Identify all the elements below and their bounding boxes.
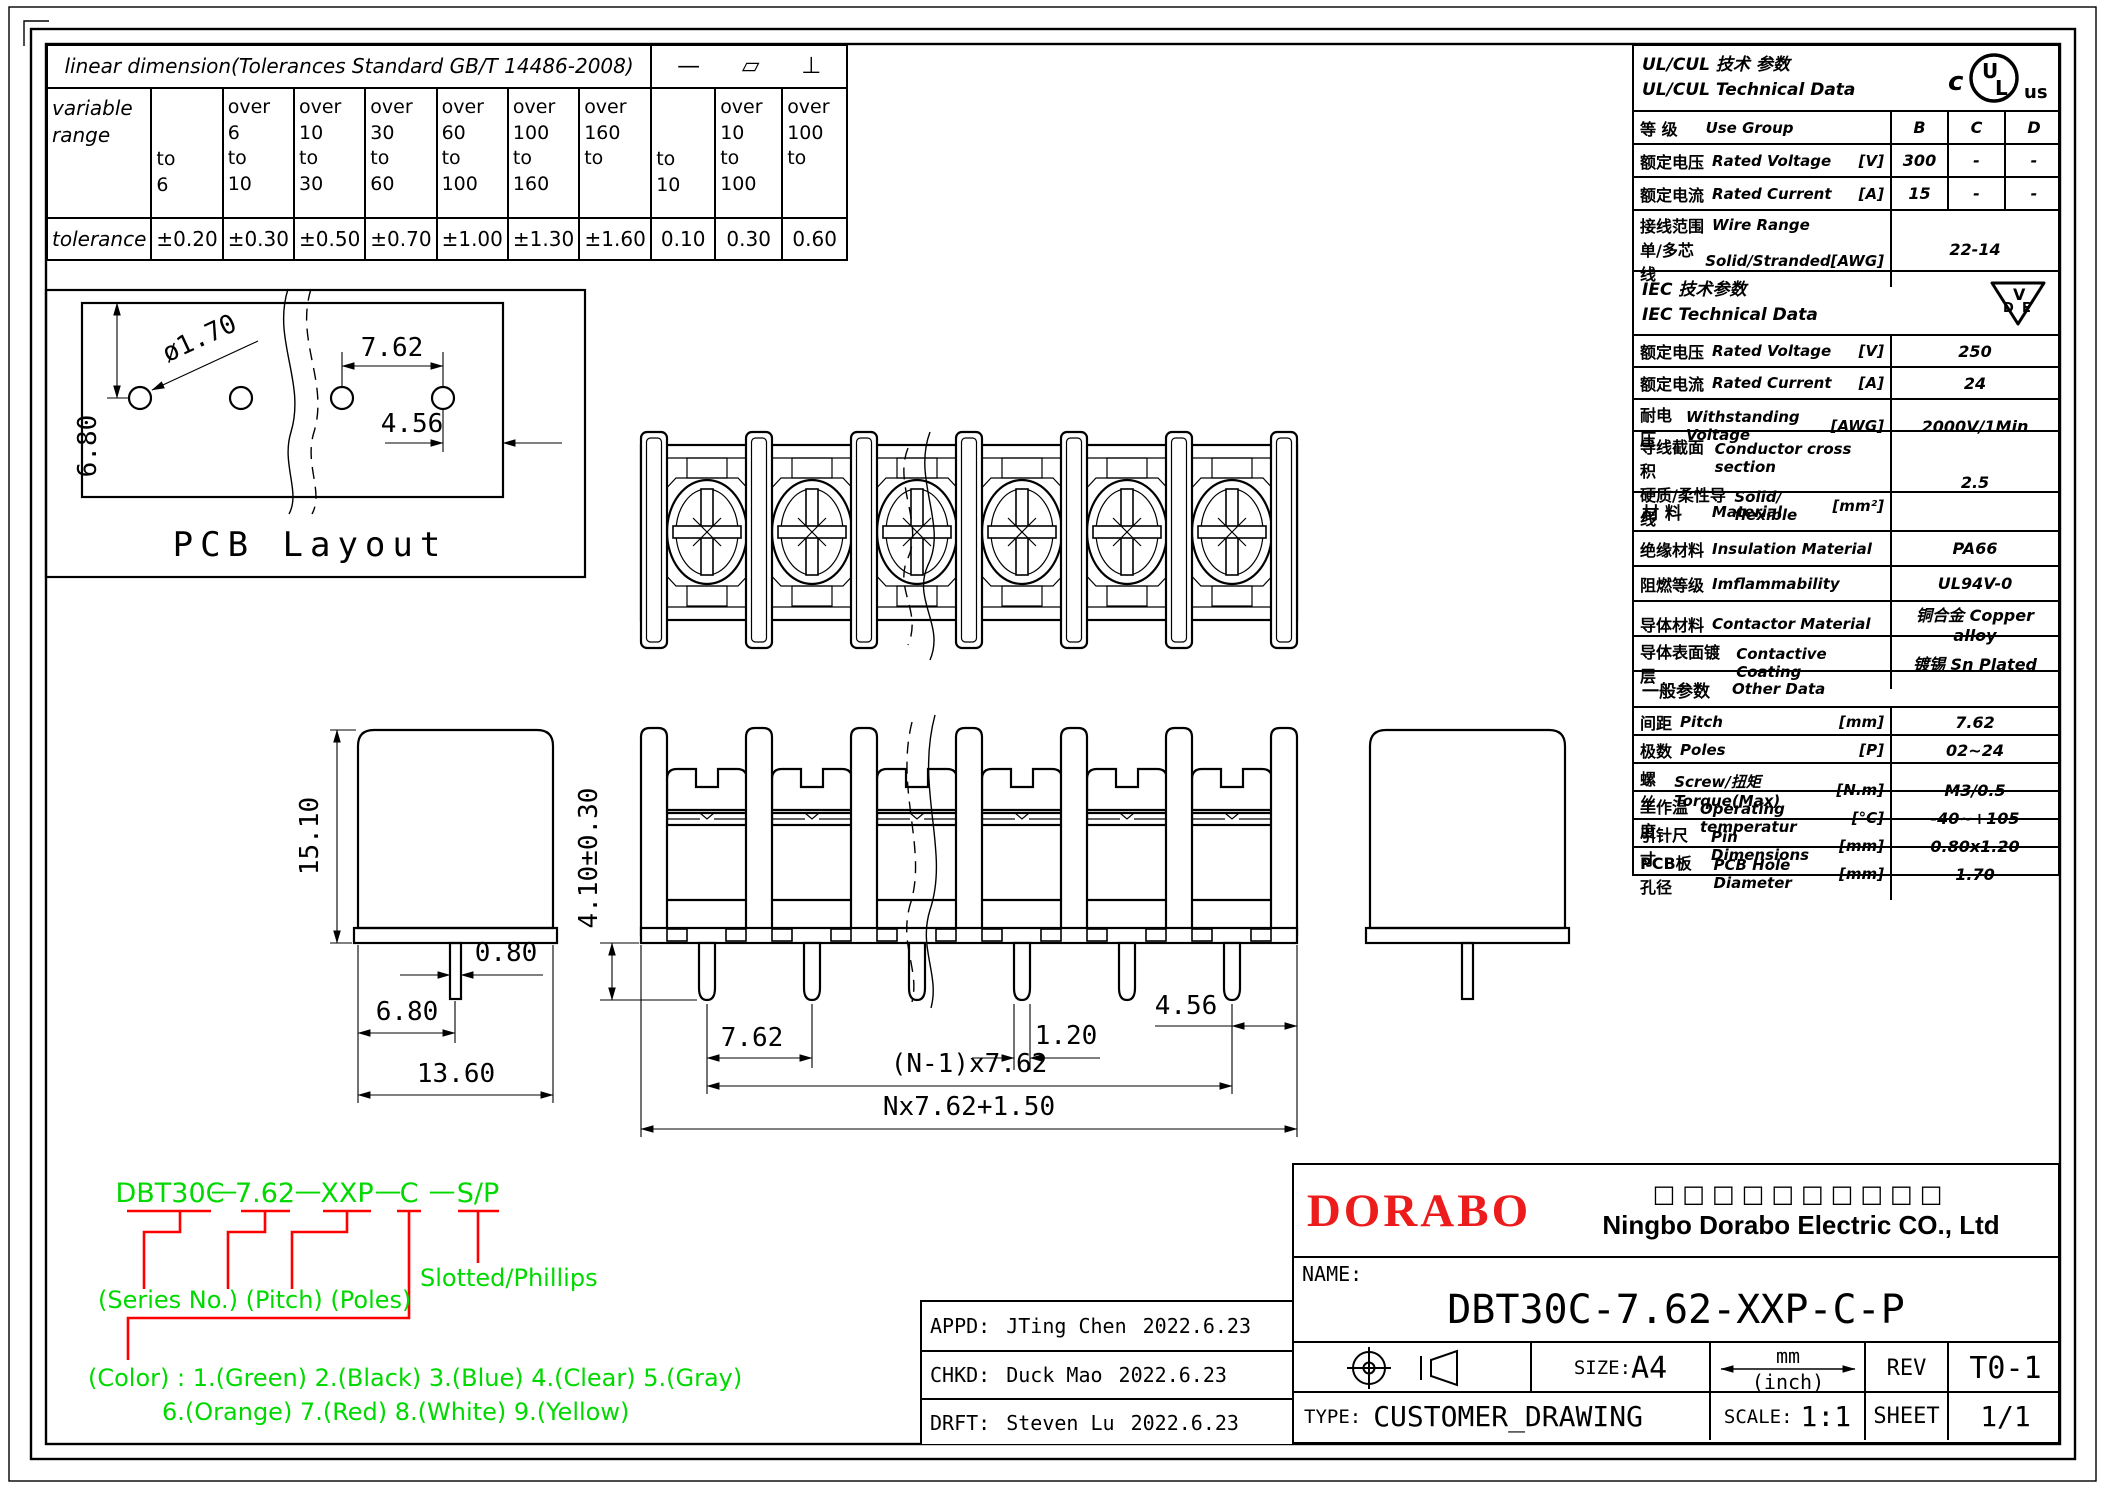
withstanding-voltage-row: 耐电压 Withstanding Voltage [AWG] 2000V/1Mi… <box>1634 398 2058 430</box>
units-cell: mm (inch) <box>1709 1343 1864 1393</box>
label-zh: PCB板孔径 <box>1640 850 1706 898</box>
unit: [mm²] <box>1832 497 1884 515</box>
tolerance-value: ±0.50 <box>294 218 365 260</box>
tolerance-table: linear dimension(Tolerances Standard GB/… <box>46 44 848 261</box>
approval-date: 2022.6.23 <box>1143 1314 1251 1338</box>
name-row: NAME: DBT30C-7.62-XXP-C-P <box>1294 1258 2058 1343</box>
front-pin-thickness-dim: 1.20 <box>1035 1021 1098 1051</box>
value: 02~24 <box>1890 736 2058 764</box>
approval-name: Duck Mao <box>1006 1363 1102 1387</box>
approvals-block: APPD: JTing Chen 2022.6.23 CHKD: Duck Ma… <box>920 1300 1292 1444</box>
range-col: over160to <box>579 88 651 218</box>
label-en: Rated Voltage <box>1712 152 1831 170</box>
engineering-drawing-sheet: ø1.70 6.80 7.62 4.56 PCB Layout <box>0 0 2104 1488</box>
svg-text:L: L <box>1995 76 2008 100</box>
screw-torque-row: 螺丝 Screw/扭矩 Torque(Max) [N.m] M3/0.5 <box>1634 762 2058 790</box>
first-angle-projection-icon <box>1317 1345 1507 1391</box>
break-line <box>924 432 935 660</box>
label-en: Rated Current <box>1712 374 1831 392</box>
unit: [V] <box>1859 152 1884 170</box>
insulation-material-row: 绝缘材料 Insulation Material PA66 <box>1634 530 2058 565</box>
company-name-cn: □□□□□□□□□□ <box>1653 1180 1950 1208</box>
ul-section-header: UL/CUL 技术 参数 UL/CUL Technical Data c U L… <box>1634 46 2058 110</box>
size-label: SIZE: <box>1574 1357 1631 1379</box>
iec-rated-voltage-row: 额定电压 Rated Voltage [V] 250 <box>1634 334 2058 366</box>
part-number-legend: DBT30C — 7.62 — XXP — C — S/P (Series No… <box>88 1176 742 1426</box>
sheet-value: 1/1 <box>1947 1393 2062 1440</box>
code-dash: — <box>211 1176 238 1207</box>
label-zh: 接线范围 <box>1640 213 1704 237</box>
side-pin-width-dim: 0.80 <box>475 938 538 968</box>
code-poles: XXP <box>320 1178 373 1209</box>
label-en: Rated Current <box>1712 185 1831 203</box>
side-pin-offset-dim: 6.80 <box>376 997 439 1027</box>
tolerance-title: linear dimension(Tolerances Standard GB/… <box>47 45 651 88</box>
section-title-en: Material <box>1712 503 1782 521</box>
side-height-dim: 15.10 <box>295 797 325 875</box>
tolerance-value: ±1.30 <box>508 218 579 260</box>
unit: [mm] <box>1839 713 1884 731</box>
legend-colors-line2: 6.(Orange) 7.(Red) 8.(White) 9.(Yellow) <box>162 1398 629 1426</box>
approval-date: 2022.6.23 <box>1119 1363 1227 1387</box>
use-group-row: 等 级 Use Group B C D <box>1634 110 2058 143</box>
terminal-block-side-view-right <box>1366 730 1569 999</box>
terminal-block-front-view: 4.10±0.30 7.62 1.20 4.56 (N-1)x7.62 Nx7.… <box>574 715 1297 1137</box>
label-en: Wire Range <box>1712 216 1810 234</box>
svg-text:D: D <box>2003 301 2014 316</box>
use-group-d: D <box>2004 112 2062 143</box>
type-row: TYPE: CUSTOMER_DRAWING SCALE:1:1 SHEET 1… <box>1294 1393 2058 1440</box>
value: UL94V-0 <box>1890 567 2058 600</box>
approval-role: CHKD: <box>930 1363 990 1387</box>
legend-series-pitch-poles: (Series No.) (Pitch) (Poles) <box>98 1286 411 1314</box>
label-en: Imflammability <box>1712 575 1840 593</box>
pitch-row: 间距 Pitch [mm] 7.62 <box>1634 706 2058 734</box>
wire-range-row: 接线范围 Wire Range 单/多芯线 Solid/Stranded [AW… <box>1634 209 2058 270</box>
section-title-zh: 材 料 <box>1642 499 1682 524</box>
rev-value: T0-1 <box>1947 1343 2062 1393</box>
approval-role: DRFT: <box>930 1411 990 1435</box>
cul-us-certification-icon: c U L us <box>1946 52 2050 104</box>
value: 镀锡 Sn Plated <box>1890 637 2058 689</box>
ul-rated-voltage-row: 额定电压 Rated Voltage [V] 300 - - <box>1634 143 2058 176</box>
break-line-dashed <box>307 289 318 514</box>
unit-mm: mm <box>1775 1344 1799 1368</box>
range-col: over100to160 <box>508 88 579 218</box>
range-col: over6to10 <box>223 88 294 218</box>
svg-text:E: E <box>2022 301 2031 316</box>
range-col: over10to30 <box>294 88 365 218</box>
unit: [AWG] <box>1831 252 1884 270</box>
unit: [V] <box>1859 342 1884 360</box>
type-label: TYPE: <box>1304 1406 1361 1428</box>
vde-certification-icon: V D E <box>1986 276 2050 330</box>
pcb-layout-caption: PCB Layout <box>173 525 448 565</box>
imflammability-row: 阻燃等级 Imflammability UL94V-0 <box>1634 565 2058 600</box>
value: 7.62 <box>1890 708 2058 736</box>
front-pin-span-dim: (N-1)x7.62 <box>891 1049 1048 1079</box>
value: 250 <box>1890 336 2058 366</box>
name-label: NAME: <box>1302 1262 1362 1286</box>
geometry-symbols: — ▱ ⊥ <box>651 45 847 88</box>
range-col: to6 <box>151 88 222 218</box>
label-en: Contactive Coating <box>1736 645 1884 681</box>
company-name-en: Ningbo Dorabo Electric CO., Ltd <box>1602 1210 1999 1241</box>
approval-row-appd: APPD: JTing Chen 2022.6.23 <box>922 1302 1292 1350</box>
label-en: Rated Voltage <box>1712 342 1831 360</box>
label-en: Solid/Stranded <box>1705 252 1830 270</box>
label-zh: 额定电压 <box>1640 339 1704 363</box>
use-group-c: C <box>1947 112 2004 143</box>
label-en: Pitch <box>1680 713 1723 731</box>
terminal-block-top-view <box>641 432 1297 660</box>
label-en: Poles <box>1680 741 1726 759</box>
range-col: to10 <box>651 88 715 218</box>
ul-title-en: UL/CUL Technical Data <box>1642 78 1946 103</box>
pcb-edge-dim: 4.56 <box>381 409 444 439</box>
iec-title-zh: IEC 技术参数 <box>1642 278 1986 303</box>
approval-role: APPD: <box>930 1314 990 1338</box>
straightness-icon: — <box>677 51 700 82</box>
label-en: Contactor Material <box>1712 615 1870 633</box>
conductor-cross-section-row: 导线截面积 Conductor cross section 硬质/柔性导线 So… <box>1634 430 2058 491</box>
value: PA66 <box>1890 532 2058 565</box>
technical-data-table: UL/CUL 技术 参数 UL/CUL Technical Data c U L… <box>1632 44 2060 876</box>
company-row: DORABO □□□□□□□□□□ Ningbo Dorabo Electric… <box>1294 1165 2058 1258</box>
contactive-coating-row: 导体表面镀层 Contactive Coating 镀锡 Sn Plated <box>1634 635 2058 670</box>
value: 1.70 <box>1890 848 2058 900</box>
pcb-hole-dia-dim: ø1.70 <box>158 309 242 369</box>
title-block: DORABO □□□□□□□□□□ Ningbo Dorabo Electric… <box>1292 1163 2060 1444</box>
label-zh: 额定电流 <box>1640 182 1704 206</box>
ul-title-zh: UL/CUL 技术 参数 <box>1642 53 1946 78</box>
size-row: SIZE:A4 mm (inch) REV T0-1 <box>1294 1343 2058 1393</box>
tolerance-value: 0.60 <box>782 218 847 260</box>
front-pitch-dim: 7.62 <box>721 1023 784 1053</box>
label-zh: 导线截面积 <box>1640 434 1707 482</box>
tolerance-value: 0.30 <box>715 218 782 260</box>
tolerance-value: ±0.30 <box>223 218 294 260</box>
code-drive: S/P <box>457 1178 500 1209</box>
front-end-margin-dim: 4.56 <box>1155 991 1218 1021</box>
front-total-length-dim: Nx7.62+1.50 <box>883 1092 1055 1122</box>
approval-row-chkd: CHKD: Duck Mao 2022.6.23 <box>922 1350 1292 1398</box>
pcb-layout-view: ø1.70 6.80 7.62 4.56 PCB Layout <box>46 289 585 577</box>
label-zh: 绝缘材料 <box>1640 537 1704 561</box>
unit-inch: (inch) <box>1751 1370 1823 1393</box>
value-c: - <box>1947 178 2004 209</box>
code-series: DBT30C <box>115 1178 224 1209</box>
label-en: PCB Hole Diameter <box>1714 856 1840 892</box>
iec-section-header: IEC 技术参数 IEC Technical Data V D E <box>1634 270 2058 334</box>
unit: [A] <box>1859 185 1884 203</box>
unit: [A] <box>1859 374 1884 392</box>
value-c: - <box>1947 145 2004 176</box>
iec-rated-current-row: 额定电流 Rated Current [A] 24 <box>1634 366 2058 398</box>
legend-colors-line1: (Color) : 1.(Green) 2.(Black) 3.(Blue) 4… <box>88 1364 742 1392</box>
break-line <box>926 715 936 1008</box>
side-body-width-dim: 13.60 <box>417 1059 495 1089</box>
pcb-pitch-dim: 7.62 <box>361 333 424 363</box>
value-d: - <box>2004 145 2062 176</box>
range-col: over100to <box>782 88 847 218</box>
tolerance-value: ±0.70 <box>365 218 436 260</box>
label-en: Use Group <box>1706 119 1794 137</box>
code-dash: — <box>429 1176 456 1207</box>
terminal-block-side-view-left: 15.10 0.80 6.80 13.60 <box>295 730 557 1103</box>
label-zh: 额定电流 <box>1640 371 1704 395</box>
tolerance-value: 0.10 <box>651 218 715 260</box>
perpendicularity-icon: ⊥ <box>801 51 821 82</box>
sheet-label: SHEET <box>1864 1393 1947 1440</box>
parallelism-icon: ▱ <box>742 51 760 82</box>
code-pitch: 7.62 <box>235 1178 295 1209</box>
label-zh: 导体材料 <box>1640 612 1704 636</box>
rev-label: REV <box>1864 1343 1947 1393</box>
range-col: over60to100 <box>437 88 508 218</box>
tolerance-value: ±1.60 <box>579 218 651 260</box>
range-col: over10to100 <box>715 88 782 218</box>
iec-title-en: IEC Technical Data <box>1642 303 1986 328</box>
pin-dimensions-row: 引针尺寸 Pin Dimensions [mm] 0.80x1.20 <box>1634 818 2058 846</box>
variable-range-header: variablerange <box>47 88 151 218</box>
tolerance-row-header: tolerance <box>47 218 151 260</box>
projection-symbols <box>1294 1343 1530 1393</box>
label-zh: 等 级 <box>1640 116 1678 140</box>
operating-temperature-row: 工作温度 Operating temperatur [°C] -40~+105 <box>1634 790 2058 818</box>
code-dash: — <box>295 1176 322 1207</box>
scale-value: 1:1 <box>1801 1400 1852 1433</box>
pcb-offset-dim: 6.80 <box>73 415 103 478</box>
unit: [P] <box>1859 741 1884 759</box>
section-title-zh: 一般参数 <box>1642 677 1710 702</box>
label-en: Insulation Material <box>1712 540 1872 558</box>
dorabo-logo: DORABO <box>1294 1165 1544 1256</box>
poles-row: 极数 Poles [P] 02~24 <box>1634 734 2058 762</box>
value-b: 300 <box>1890 145 1947 176</box>
unit: [mm] <box>1839 865 1884 883</box>
label-zh: 额定电压 <box>1640 149 1704 173</box>
svg-text:us: us <box>2024 82 2048 103</box>
tolerance-value: ±1.00 <box>437 218 508 260</box>
approval-row-drft: DRFT: Steven Lu 2022.6.23 <box>922 1398 1292 1446</box>
front-pin-length-dim: 4.10±0.30 <box>574 788 604 929</box>
size-value: A4 <box>1631 1351 1667 1386</box>
use-group-b: B <box>1890 112 1947 143</box>
code-dash: — <box>375 1176 402 1207</box>
type-value: CUSTOMER_DRAWING <box>1373 1400 1643 1433</box>
part-number: DBT30C-7.62-XXP-C-P <box>1294 1287 2058 1333</box>
label-zh: 极数 <box>1640 738 1672 762</box>
value-d: - <box>2004 178 2062 209</box>
tolerance-value: ±0.20 <box>151 218 222 260</box>
code-color: C <box>400 1178 419 1209</box>
label-zh: 阻燃等级 <box>1640 572 1704 596</box>
frame-corner-mark <box>24 21 49 46</box>
value: 24 <box>1890 368 2058 398</box>
value-b: 15 <box>1890 178 1947 209</box>
approval-name: JTing Chen <box>1006 1314 1126 1338</box>
break-line <box>284 289 295 514</box>
contactor-material-row: 导体材料 Contactor Material 铜合金 Copper alloy <box>1634 600 2058 635</box>
label-zh: 间距 <box>1640 710 1672 734</box>
range-col: over30to60 <box>365 88 436 218</box>
svg-text:c: c <box>1948 67 1964 97</box>
conductor-value: 2.5 <box>1890 432 2058 532</box>
pcb-hole-diameter-row: PCB板孔径 PCB Hole Diameter [mm] 1.70 <box>1634 846 2058 874</box>
legend-drive: Slotted/Phillips <box>420 1264 598 1292</box>
label-en: Conductor cross section <box>1715 440 1884 476</box>
approval-date: 2022.6.23 <box>1131 1411 1239 1435</box>
section-title-en: Other Data <box>1732 680 1825 698</box>
approval-name: Steven Lu <box>1006 1411 1114 1435</box>
ul-rated-current-row: 额定电流 Rated Current [A] 15 - - <box>1634 176 2058 209</box>
scale-label: SCALE: <box>1724 1406 1793 1428</box>
